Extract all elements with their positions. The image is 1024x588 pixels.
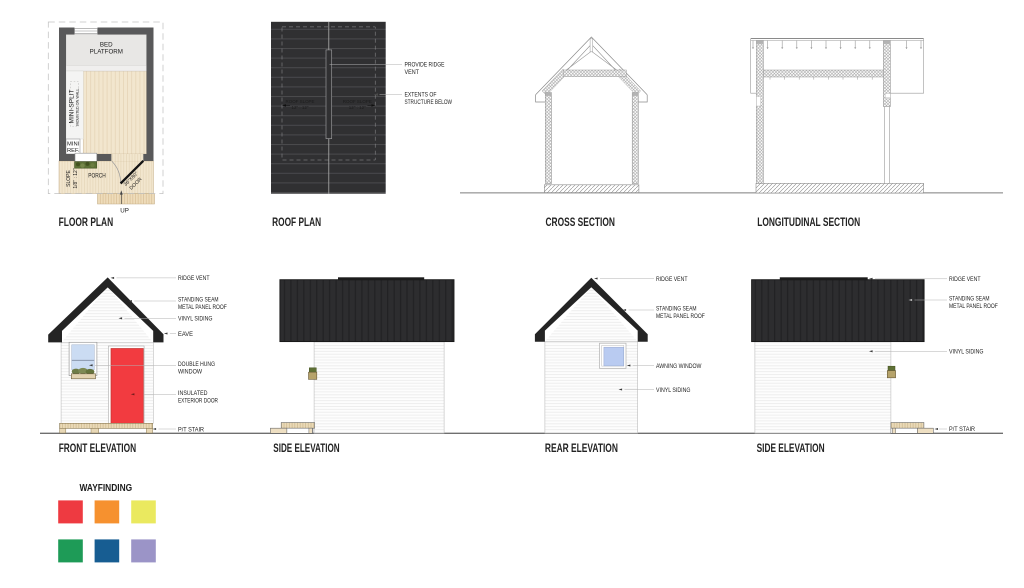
svg-text:VENT: VENT xyxy=(405,69,420,76)
svg-text:FRONT ELEVATION: FRONT ELEVATION xyxy=(59,443,136,455)
svg-text:EXTENTS OF: EXTENTS OF xyxy=(405,91,437,98)
svg-text:FLOOR PLAN: FLOOR PLAN xyxy=(59,217,114,229)
svg-text:RIDGE VENT: RIDGE VENT xyxy=(178,275,210,282)
svg-text:PLATFORM: PLATFORM xyxy=(90,49,123,56)
svg-text:RIDGE VENT: RIDGE VENT xyxy=(656,276,688,283)
svg-text:WAYFINDING: WAYFINDING xyxy=(80,483,133,494)
svg-text:VINYL SIDING: VINYL SIDING xyxy=(656,387,691,394)
svg-text:SIDE ELEVATION: SIDE ELEVATION xyxy=(757,443,825,455)
svg-text:EAVE: EAVE xyxy=(178,331,193,338)
svg-text:STRUCTURE BELOW: STRUCTURE BELOW xyxy=(405,99,453,106)
svg-text:ROOF PLAN: ROOF PLAN xyxy=(272,217,321,229)
svg-text:PROVIDE RIDGE: PROVIDE RIDGE xyxy=(405,62,445,69)
svg-text:DOUBLE HUNG: DOUBLE HUNG xyxy=(178,361,215,368)
svg-text:UP: UP xyxy=(120,208,129,215)
svg-text:METAL PANEL ROOF: METAL PANEL ROOF xyxy=(178,304,227,311)
svg-text:BED: BED xyxy=(100,41,113,48)
svg-text:PORCH: PORCH xyxy=(88,173,105,180)
svg-text:VINYL SIDING: VINYL SIDING xyxy=(178,316,213,323)
svg-text:1/8" : 12": 1/8" : 12" xyxy=(73,168,79,188)
svg-text:P/T STAIR: P/T STAIR xyxy=(949,426,975,433)
svg-text:WINDOW: WINDOW xyxy=(178,368,202,375)
svg-text:REAR ELEVATION: REAR ELEVATION xyxy=(545,443,618,455)
svg-text:METAL PANEL ROOF: METAL PANEL ROOF xyxy=(949,303,998,310)
svg-text:12" : 12": 12" : 12" xyxy=(292,105,309,111)
svg-text:STANDING SEAM: STANDING SEAM xyxy=(656,306,697,313)
svg-text:MINI: MINI xyxy=(67,142,80,148)
svg-text:LONGITUDINAL SECTION: LONGITUDINAL SECTION xyxy=(757,217,860,229)
svg-text:RIDGE VENT: RIDGE VENT xyxy=(949,276,981,283)
svg-text:MOUNTED ON WALL: MOUNTED ON WALL xyxy=(75,88,79,125)
svg-text:SIDE ELEVATION: SIDE ELEVATION xyxy=(273,443,339,455)
svg-text:ROOF SLOPE: ROOF SLOPE xyxy=(343,99,372,105)
svg-text:STANDING SEAM: STANDING SEAM xyxy=(949,296,990,303)
svg-text:STANDING SEAM: STANDING SEAM xyxy=(178,297,219,304)
svg-text:INSULATED: INSULATED xyxy=(178,390,208,397)
svg-text:P/T STAIR: P/T STAIR xyxy=(178,426,204,433)
svg-text:REF.: REF. xyxy=(67,148,80,154)
svg-text:SLOPE: SLOPE xyxy=(66,170,72,187)
svg-text:AWNING WINDOW: AWNING WINDOW xyxy=(656,363,702,370)
svg-text:12" : 12": 12" : 12" xyxy=(349,105,366,111)
svg-text:CROSS SECTION: CROSS SECTION xyxy=(546,217,615,229)
svg-text:METAL PANEL ROOF: METAL PANEL ROOF xyxy=(656,313,705,320)
svg-text:EXTERIOR DOOR: EXTERIOR DOOR xyxy=(178,397,218,404)
svg-text:ROOF SLOPE: ROOF SLOPE xyxy=(286,99,315,105)
svg-text:VINYL SIDING: VINYL SIDING xyxy=(949,349,984,356)
